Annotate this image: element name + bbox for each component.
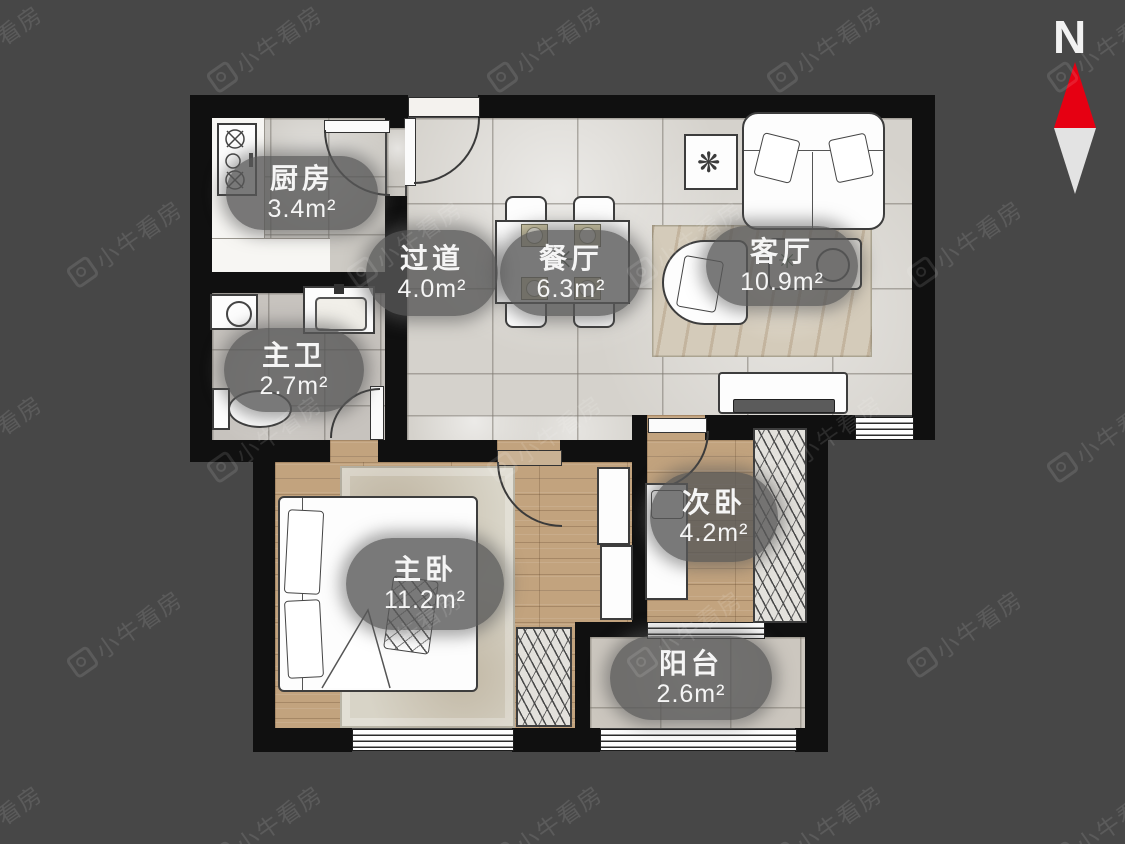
room-label-master-bedroom: 主卧 11.2m² bbox=[346, 538, 504, 630]
master-wardrobe bbox=[516, 627, 572, 727]
room-area: 4.2m² bbox=[680, 519, 749, 548]
sofa-seat-divider bbox=[812, 152, 813, 228]
side-table-plant-icon: ❋ bbox=[697, 146, 720, 179]
room-label-dining: 餐厅 6.3m² bbox=[500, 230, 642, 316]
watermark: 小牛看房 bbox=[62, 191, 189, 294]
room-area: 4.0m² bbox=[398, 275, 467, 304]
room-name: 阳台 bbox=[659, 648, 723, 680]
wall-segment bbox=[763, 622, 805, 637]
room-name: 主卧 bbox=[393, 554, 457, 586]
xiaoniu-logo-icon bbox=[765, 60, 800, 95]
room-name: 主卫 bbox=[262, 340, 326, 372]
xiaoniu-logo-icon bbox=[205, 60, 240, 95]
room-name: 餐厅 bbox=[539, 243, 603, 275]
watermark: 小牛看房 bbox=[202, 776, 329, 844]
sink-basin bbox=[315, 297, 367, 331]
wall-segment bbox=[805, 440, 828, 752]
room-label-kitchen: 厨房 3.4m² bbox=[226, 156, 378, 230]
watermark: 小牛看房 bbox=[202, 0, 329, 98]
faucet-icon bbox=[334, 284, 344, 294]
wall-segment bbox=[190, 95, 408, 118]
xiaoniu-logo-icon bbox=[205, 840, 240, 844]
room-name: 过道 bbox=[400, 243, 464, 275]
bed-pillow bbox=[284, 509, 324, 595]
entry-threshold bbox=[408, 97, 480, 117]
north-arrow-white-icon bbox=[1054, 128, 1096, 194]
room-label-balcony: 阳台 2.6m² bbox=[610, 636, 772, 720]
xiaoniu-logo-icon bbox=[765, 840, 800, 844]
watermark: 小牛看房 bbox=[0, 0, 49, 98]
room-area: 11.2m² bbox=[384, 586, 466, 615]
wall-segment bbox=[912, 415, 935, 440]
room-area: 6.3m² bbox=[537, 275, 606, 304]
watermark: 小牛看房 bbox=[0, 776, 49, 844]
room-name: 客厅 bbox=[750, 236, 814, 268]
north-arrow-red-icon bbox=[1054, 62, 1096, 128]
wall-segment bbox=[253, 448, 275, 752]
bathroom-vanity bbox=[303, 286, 375, 334]
living-room-window bbox=[855, 417, 914, 440]
sliding-panel bbox=[597, 467, 630, 545]
watermark: 小牛看房 bbox=[902, 581, 1029, 684]
watermark: 小牛看房 bbox=[482, 0, 609, 98]
xiaoniu-logo-icon bbox=[65, 645, 100, 680]
bed-pillow bbox=[284, 599, 324, 679]
watermark: 小牛看房 bbox=[762, 0, 889, 98]
wall-segment bbox=[560, 440, 643, 462]
washer-door-icon bbox=[226, 301, 252, 327]
washing-machine bbox=[210, 294, 258, 330]
watermark: 小牛看房 bbox=[0, 386, 49, 489]
sliding-panel bbox=[600, 545, 633, 620]
wall-segment bbox=[575, 622, 590, 752]
room-area: 2.7m² bbox=[260, 372, 329, 401]
room-label-living: 客厅 10.9m² bbox=[706, 226, 858, 306]
room-label-hallway: 过道 4.0m² bbox=[366, 230, 498, 316]
room-area: 2.6m² bbox=[657, 680, 726, 709]
room-label-second-bedroom: 次卧 4.2m² bbox=[650, 472, 778, 562]
wall-segment bbox=[378, 440, 497, 462]
balcony-window bbox=[600, 729, 797, 751]
room-name: 次卧 bbox=[682, 487, 746, 519]
xiaoniu-logo-icon bbox=[485, 840, 520, 844]
wall-segment bbox=[253, 728, 352, 752]
wall-segment bbox=[912, 95, 935, 440]
room-area: 10.9m² bbox=[740, 268, 824, 297]
sofa bbox=[742, 112, 885, 230]
wall-segment bbox=[575, 622, 650, 637]
room-area: 3.4m² bbox=[268, 195, 337, 224]
xiaoniu-logo-icon bbox=[905, 645, 940, 680]
xiaoniu-logo-icon bbox=[1045, 840, 1080, 844]
xiaoniu-logo-icon bbox=[65, 255, 100, 290]
north-label: N bbox=[1053, 10, 1086, 64]
room-name: 厨房 bbox=[270, 163, 334, 195]
master-bedroom-window bbox=[352, 729, 514, 751]
sofa-pillow bbox=[753, 132, 801, 184]
watermark: 小牛看房 bbox=[762, 776, 889, 844]
xiaoniu-logo-icon bbox=[1045, 450, 1080, 485]
hallway-floor-lower bbox=[407, 415, 632, 440]
watermark: 小牛看房 bbox=[62, 581, 189, 684]
xiaoniu-logo-icon bbox=[485, 60, 520, 95]
room-label-master-bath: 主卫 2.7m² bbox=[224, 328, 364, 412]
watermark: 小牛看房 bbox=[1042, 386, 1125, 489]
tv bbox=[733, 399, 835, 413]
watermark: 小牛看房 bbox=[1042, 776, 1125, 844]
watermark: 小牛看房 bbox=[482, 776, 609, 844]
bathroom-doorway bbox=[330, 440, 378, 462]
floorplan-canvas: ✳ ❋ ✳ 厨房 3.4m² 过道 4.0m² bbox=[0, 0, 1125, 844]
sofa-pillow bbox=[828, 133, 874, 184]
